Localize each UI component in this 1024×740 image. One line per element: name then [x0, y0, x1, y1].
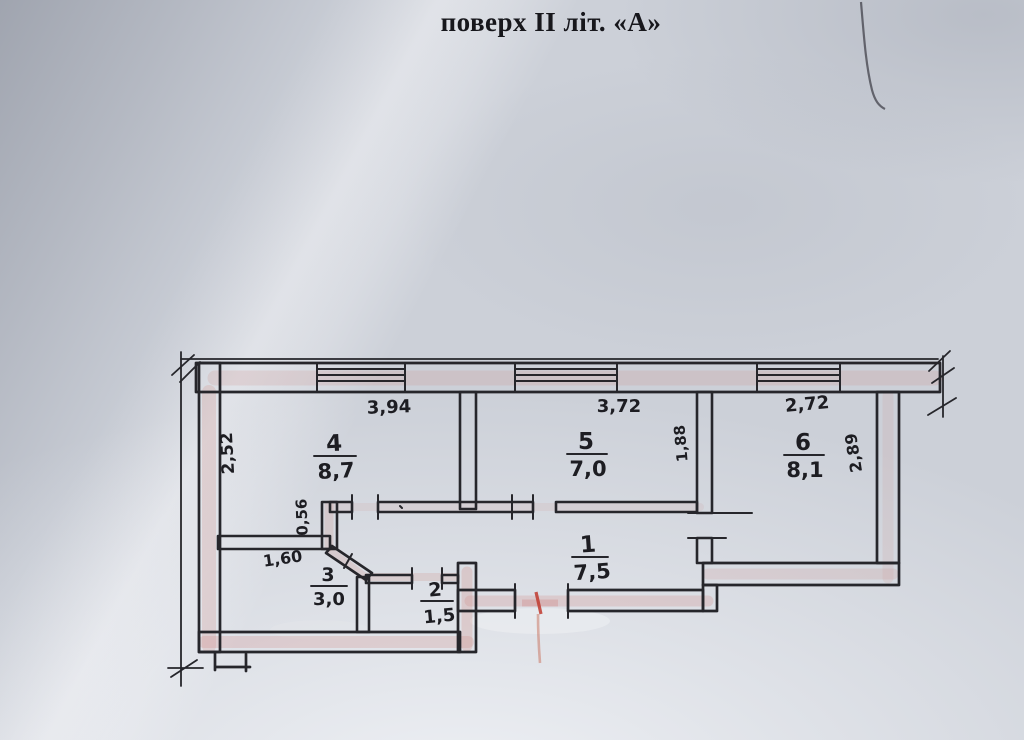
room6-depth-dim: 2,89 — [841, 432, 866, 474]
entry-step-mark — [215, 652, 250, 671]
wall-room4-room3 — [218, 536, 330, 549]
room-3-label: 3 3,0 — [313, 564, 345, 610]
room-6-area: 8,1 — [786, 458, 823, 482]
room-1-label: 1 7,5 — [573, 532, 612, 586]
room-2-number: 2 — [428, 579, 443, 602]
wall-room4-room5 — [460, 392, 476, 509]
room-6-label: 6 8,1 — [786, 430, 823, 482]
door-room6 — [688, 513, 752, 538]
room6-width-dim: 2,72 — [784, 392, 830, 417]
left-bottom-dim-ticks — [168, 660, 203, 677]
floor-plan-drawing: поверх II літ. «А» 4 8,7 5 7,0 6 8,1 1 7… — [0, 0, 1024, 740]
niche-depth-dim: 0,56 — [292, 498, 311, 536]
wall-room5-room6-lower — [697, 538, 712, 563]
dimension-labels: 3,94 3,72 2,72 2,52 1,88 2,89 0,56 1,60 — [217, 392, 866, 571]
wall-room5-room6-upper — [697, 392, 712, 513]
page-title: поверх II літ. «А» — [441, 7, 662, 37]
room-3-area: 3,0 — [313, 589, 345, 610]
stray-pen-mark — [861, 2, 885, 109]
room-5-label: 5 7,0 — [569, 429, 606, 481]
room-4-label: 4 8,7 — [317, 431, 355, 484]
room-2-label: 2 1,5 — [423, 579, 457, 629]
right-dimension-line — [928, 356, 956, 417]
room-5-number: 5 — [578, 429, 594, 455]
room-6-number: 6 — [795, 430, 811, 456]
room-4-area: 8,7 — [317, 458, 355, 484]
room-3-number: 3 — [321, 564, 334, 586]
room-4-number: 4 — [325, 431, 342, 458]
room5-depth-dim: 1,88 — [670, 424, 691, 462]
room4-width-dim: 3,94 — [366, 396, 411, 419]
photographed-floor-plan-sheet: поверх II літ. «А» 4 8,7 5 7,0 6 8,1 1 7… — [0, 0, 1024, 740]
room-5-area: 7,0 — [569, 457, 606, 481]
room3-width-dim: 1,60 — [262, 546, 304, 570]
room4-depth-dim: 2,52 — [217, 432, 239, 475]
room-1-number: 1 — [579, 532, 597, 559]
room-2-area: 1,5 — [423, 605, 457, 629]
room-1-area: 7,5 — [573, 559, 612, 586]
room5-width-dim: 3,72 — [597, 396, 641, 417]
